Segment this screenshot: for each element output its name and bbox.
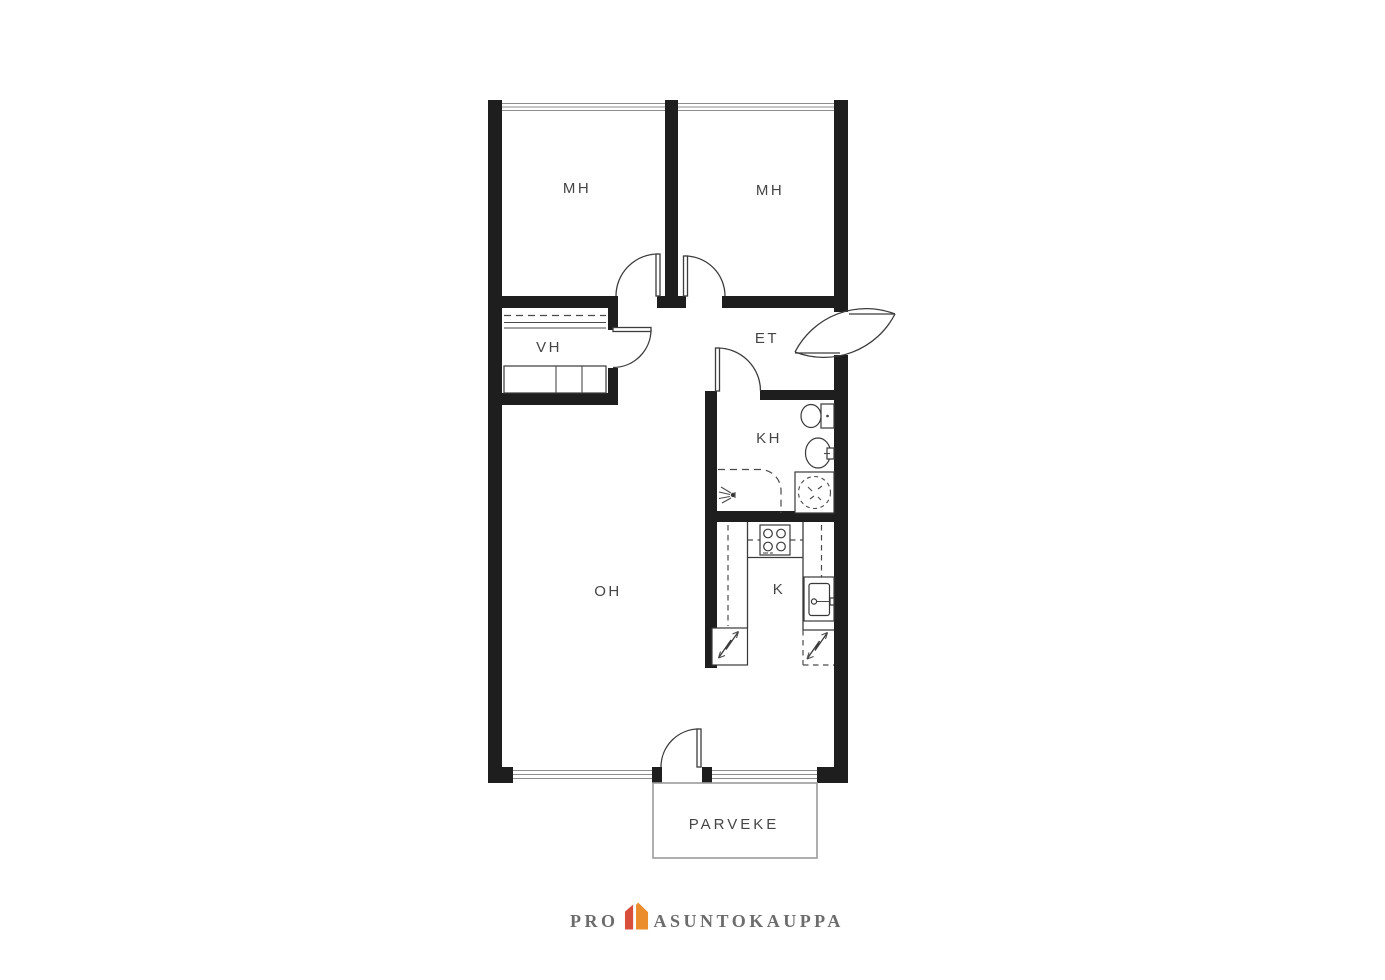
room-label-bedroom-left: MH [563, 180, 591, 197]
wall-closet-right-upper [608, 296, 618, 330]
door-bedroom-right [684, 256, 726, 296]
room-label-living-room: OH [594, 583, 622, 600]
house-icon-left-half [624, 904, 632, 929]
door-bathroom [716, 348, 761, 391]
window-living-right [712, 771, 817, 779]
wall-bathroom-kitchen-left [705, 391, 717, 668]
washbasin [806, 438, 835, 468]
wall-hall-right [722, 296, 835, 308]
door-swing-arc [795, 309, 895, 352]
house-icon-right-half [636, 903, 648, 930]
door-leaf [684, 256, 688, 296]
wall-right-upper [834, 100, 848, 312]
door-leaf [613, 328, 651, 332]
wall-bottom-left-corner [488, 767, 513, 783]
window-bedroom-right [678, 104, 834, 111]
door-leaf [656, 254, 660, 296]
room-label-closet: VH [536, 339, 562, 356]
room-label-bathroom: KH [756, 430, 782, 447]
door-bedroom-left [616, 254, 660, 296]
house-icon [624, 901, 649, 930]
door-swing-arc [685, 256, 725, 296]
washing-machine-space [795, 472, 834, 513]
room-labels: MH MH VH ET KH K OH PARVEKE [536, 180, 785, 833]
door-swing-arc [616, 254, 658, 296]
door-swing-arc [661, 729, 699, 767]
floor-plan-drawing: MH MH VH ET KH K OH PARVEKE [0, 0, 1385, 980]
bathroom-fixtures [718, 404, 834, 513]
logo-word-asuntokauppa: ASUNTOKAUPPA [654, 908, 844, 934]
door-leaf [697, 729, 701, 767]
door-swing-arc [795, 314, 895, 357]
wall-closet-bottom [488, 393, 618, 405]
wall-hall-left [502, 296, 616, 308]
balcony-door-post-left [652, 767, 662, 783]
door-closet [613, 328, 651, 368]
balcony-door-post-right [702, 767, 712, 783]
wardrobe-units [504, 366, 606, 393]
window-bedroom-left [502, 104, 665, 111]
freezer [803, 630, 834, 665]
wall-right-lower [834, 355, 848, 783]
wall-bedroom-divider [665, 100, 678, 300]
room-label-bedroom-right: MH [756, 182, 784, 199]
shower-head-icon [719, 487, 735, 503]
shower [718, 470, 781, 514]
door-entrance [795, 309, 895, 358]
wall-bathroom-top [760, 390, 834, 400]
wall-bottom-right-corner [817, 767, 848, 783]
stove [760, 525, 790, 555]
door-swing-arc [613, 330, 651, 368]
room-label-kitchen: K [773, 581, 786, 598]
kitchen-sink [804, 577, 834, 621]
door-leaf [716, 348, 720, 391]
wall-left [488, 100, 502, 783]
room-label-balcony: PARVEKE [689, 816, 779, 833]
door-balcony [661, 729, 701, 767]
refrigerator [712, 628, 748, 665]
toilet [801, 404, 834, 428]
window-living-left [513, 771, 652, 779]
realtor-logo: PRO ASUNTOKAUPPA [570, 901, 844, 934]
door-swing-arc [718, 348, 761, 391]
logo-word-pro: PRO [570, 908, 619, 934]
wall-divider-cap [657, 296, 686, 308]
floor-plan-page: MH MH VH ET KH K OH PARVEKE PRO ASUNTOKA… [0, 0, 1385, 980]
room-label-entry-hall: ET [755, 330, 779, 347]
